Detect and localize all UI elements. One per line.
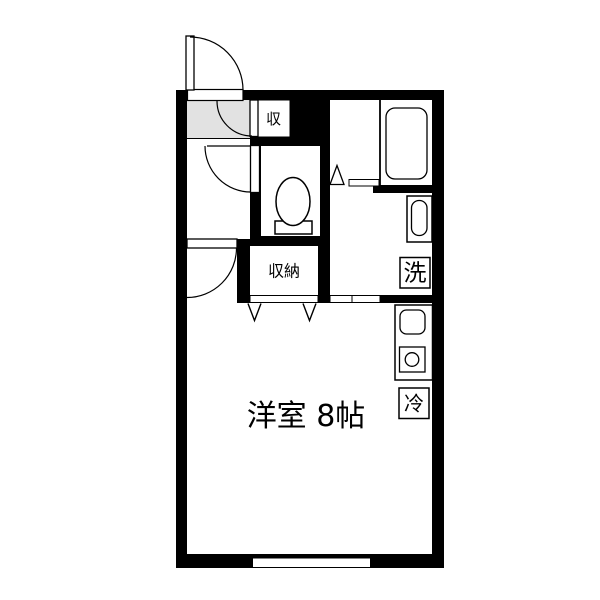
wall-bath-bottom [373,185,432,193]
label-fridge: 冷 [404,392,424,416]
window-bottom [253,559,370,568]
wall-washroom-bottom [380,295,432,303]
entrance-door-leaf [186,36,194,90]
hall-door-swing-arc [187,248,237,298]
bath-door-triangle-mark [330,166,344,185]
wall-toilet-bottom [261,236,330,246]
wall-bath-left [320,100,330,246]
entrance-door-swing-arc [190,37,243,90]
hall-door-leaf [187,239,237,248]
genkan-door-leaf [250,100,258,137]
label-main-room: 洋室 8帖 [247,399,366,434]
washroom-doorway-band [330,296,380,303]
wall-closet-right [318,246,330,303]
genkan-floor [187,100,250,139]
folding-door-mark-left [248,304,261,321]
wall-left [176,90,187,568]
label-washer: 洗 [404,261,427,287]
wall-right [432,90,444,568]
label-entry-storage: 収 [266,110,281,128]
floorplan-canvas: 収 収納 洗 冷 洋室 8帖 [0,0,600,600]
toilet-door-swing-arc [205,146,251,192]
folding-door-mark-right [303,304,316,321]
closet-track [250,296,318,303]
bathtub [386,108,427,179]
toilet-door-leaf [251,146,260,193]
wall-closet-left [237,239,250,303]
toilet-bowl [276,178,310,226]
bath-threshold [349,180,379,187]
label-closet: 収納 [268,262,300,281]
entrance-door-opening [188,90,244,101]
floorplan-drawing: 収 収納 洗 冷 洋室 8帖 [0,0,600,600]
